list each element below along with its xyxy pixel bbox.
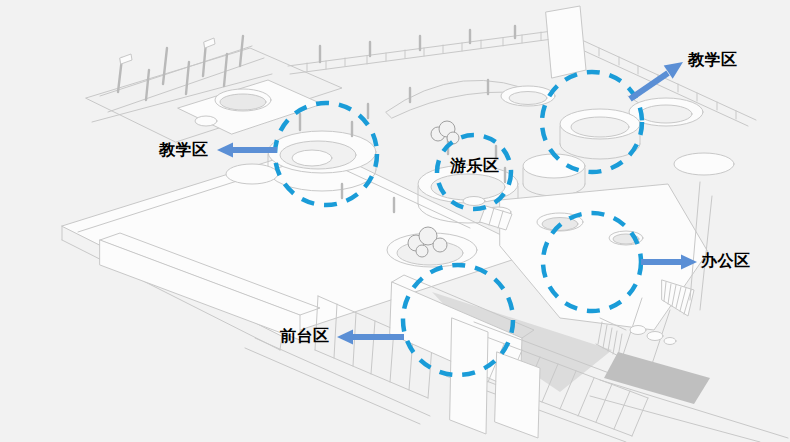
functional-zoning-diagram: 教学区 教学区 游乐区 办公区 前台区 xyxy=(0,0,790,442)
zone-label-office: 办公区 xyxy=(701,252,751,270)
zone-label-teaching-left: 教学区 xyxy=(159,141,209,159)
zone-label-reception: 前台区 xyxy=(280,327,330,345)
tall-fin-wall xyxy=(546,6,586,78)
zone-label-play: 游乐区 xyxy=(450,157,500,175)
building-axonometric-drawing xyxy=(0,0,790,442)
pod-cluster-top-right xyxy=(501,86,734,196)
scaffold-posts xyxy=(86,36,342,142)
zone-label-teaching-right: 教学区 xyxy=(688,51,738,69)
